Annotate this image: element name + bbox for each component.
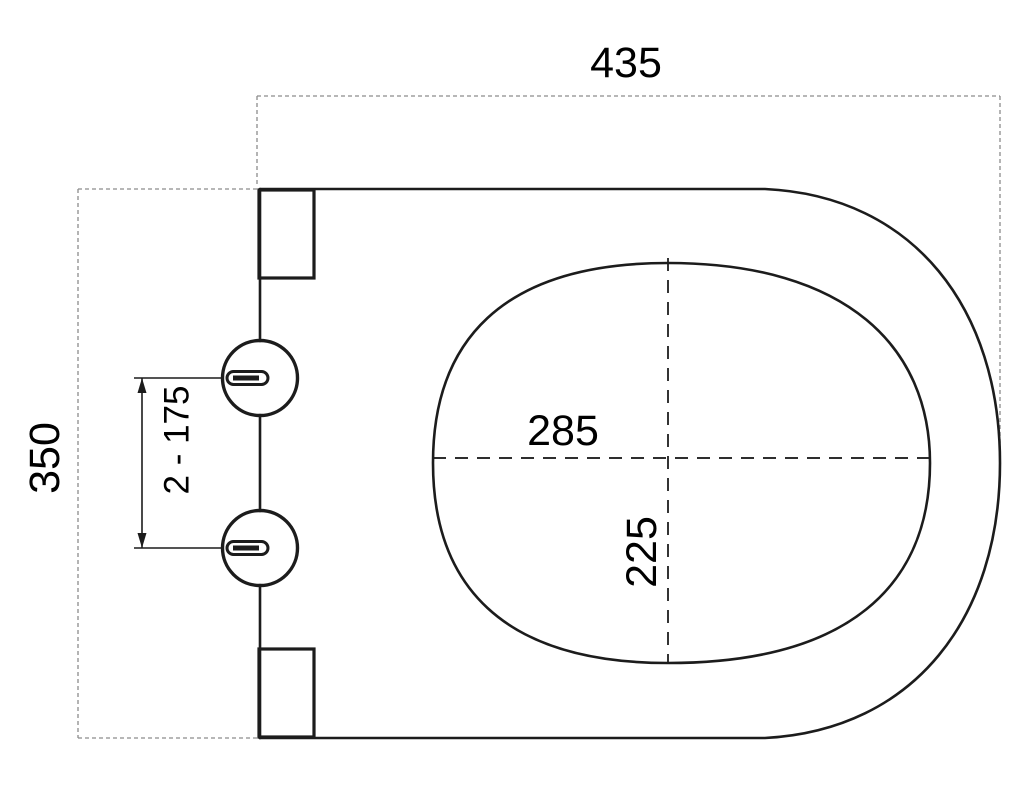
arrowhead-down-icon [138,533,147,548]
seat-outline [260,189,1000,738]
dimension-labels: 435 350 2 - 175 285 225 [21,39,666,588]
centerlines [433,258,930,663]
hinge-plate-top [259,190,314,278]
technical-drawing-svg: 435 350 2 - 175 285 225 [0,0,1030,792]
hinge-plate-bottom [259,649,314,737]
arrowhead-up-icon [138,378,147,393]
hinge-plates [259,190,314,737]
seat-inner-opening [433,263,930,663]
seat-outer-outline [260,189,1000,738]
dimension-drawing: 435 350 2 - 175 285 225 [0,0,1030,792]
label-inner-width: 285 [527,407,599,455]
label-inner-length: 225 [618,516,666,588]
label-overall-depth: 350 [21,422,69,494]
label-hinge-spacing: 2 - 175 [157,386,196,495]
label-overall-width: 435 [590,39,662,87]
